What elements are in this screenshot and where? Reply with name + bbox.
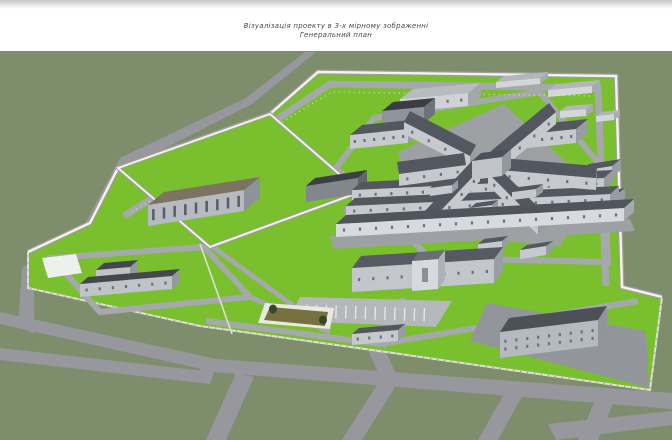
window-icon — [357, 338, 359, 341]
window-icon — [567, 216, 569, 219]
window-icon — [457, 272, 459, 275]
window-icon — [461, 193, 463, 196]
window-icon — [551, 137, 553, 140]
bush-icon — [319, 316, 327, 325]
window-icon — [570, 340, 572, 343]
window-icon — [401, 275, 403, 278]
window-icon — [535, 201, 537, 204]
building-admin-portal — [412, 250, 445, 291]
window-icon — [184, 204, 187, 215]
window-icon — [487, 221, 489, 224]
window-icon — [548, 123, 550, 126]
window-icon — [566, 180, 568, 183]
window-icon — [372, 277, 374, 280]
window-icon — [585, 182, 587, 185]
window-icon — [152, 209, 155, 220]
window-icon — [423, 224, 425, 227]
window-icon — [151, 283, 153, 286]
drawing-title-line1: Візуалізація проекту в 3-х мірному зобра… — [0, 22, 672, 31]
window-icon — [392, 136, 394, 139]
window-icon — [439, 223, 441, 226]
window-icon — [528, 177, 530, 180]
window-icon — [485, 188, 487, 191]
window-icon — [615, 213, 617, 216]
window-icon — [473, 180, 475, 183]
window-icon — [391, 226, 393, 229]
window-icon — [519, 219, 521, 222]
window-icon — [358, 278, 360, 281]
window-icon — [237, 196, 240, 207]
window-icon — [383, 137, 385, 140]
window-icon — [551, 217, 553, 220]
window-icon — [519, 147, 521, 150]
window-icon — [570, 135, 572, 138]
render-page: Візуалізація проекту в 3-х мірному зобра… — [0, 0, 672, 440]
window-icon — [440, 173, 442, 176]
window-icon — [125, 285, 127, 288]
window-icon — [541, 138, 543, 141]
window-icon — [407, 225, 409, 228]
window-icon — [343, 229, 345, 232]
window-icon — [359, 228, 361, 231]
window-icon — [526, 345, 528, 348]
window-icon — [591, 337, 593, 340]
window-icon — [99, 287, 101, 290]
window-icon — [547, 179, 549, 182]
drawing-title: Візуалізація проекту в 3-х мірному зобра… — [0, 22, 672, 40]
window-icon — [503, 220, 505, 223]
window-icon — [359, 194, 361, 197]
window-icon — [502, 203, 504, 206]
window-icon — [173, 206, 176, 217]
window-icon — [515, 338, 517, 341]
window-icon — [390, 192, 392, 195]
window-icon — [493, 184, 495, 187]
window-icon — [419, 207, 421, 210]
window-icon — [386, 208, 388, 211]
window-icon — [112, 286, 114, 289]
window-icon — [486, 270, 488, 273]
window-icon — [195, 203, 198, 214]
window-icon — [448, 206, 450, 209]
window-icon — [548, 342, 550, 345]
window-icon — [447, 100, 449, 103]
window-icon — [472, 271, 474, 274]
window-icon — [164, 282, 166, 285]
window-icon — [535, 218, 537, 221]
window-icon — [403, 207, 405, 210]
drawing-title-line2: Генеральний план — [0, 31, 672, 40]
window-icon — [471, 221, 473, 224]
window-icon — [375, 227, 377, 230]
window-icon — [391, 335, 393, 338]
window-top-strip — [0, 0, 672, 9]
window-icon — [422, 191, 424, 194]
window-icon — [599, 214, 601, 217]
window-icon — [581, 338, 583, 341]
window-icon — [537, 336, 539, 339]
window-icon — [560, 136, 562, 139]
window-icon — [515, 346, 517, 349]
window-icon — [568, 200, 570, 203]
window-icon — [504, 340, 506, 343]
window-icon — [559, 333, 561, 336]
window-icon — [428, 139, 430, 142]
window-icon — [506, 196, 508, 199]
window-icon — [406, 177, 408, 180]
window-icon — [422, 268, 428, 282]
window-icon — [444, 148, 446, 151]
window-icon — [411, 131, 413, 134]
window-icon — [460, 99, 462, 102]
window-icon — [551, 201, 553, 204]
window-icon — [353, 210, 355, 213]
bush-icon — [269, 305, 277, 314]
window-icon — [380, 336, 382, 339]
window-icon — [457, 171, 459, 174]
window-icon — [163, 208, 166, 219]
window-icon — [368, 337, 370, 340]
window-icon — [370, 209, 372, 212]
window-icon — [455, 222, 457, 225]
window-icon — [469, 204, 471, 207]
window-icon — [386, 276, 388, 279]
window-icon — [354, 140, 356, 143]
window-icon — [205, 201, 208, 212]
window-icon — [363, 139, 365, 142]
window-icon — [583, 215, 585, 218]
window-icon — [373, 138, 375, 141]
window-icon — [504, 348, 506, 351]
window-icon — [216, 199, 219, 210]
window-icon — [402, 135, 404, 138]
window-icon — [423, 175, 425, 178]
window-icon — [570, 332, 572, 335]
window-icon — [559, 341, 561, 344]
window-icon — [375, 193, 377, 196]
window-icon — [591, 329, 593, 332]
window-icon — [406, 191, 408, 194]
window-icon — [138, 284, 140, 287]
window-icon — [537, 344, 539, 347]
window-icon — [581, 330, 583, 333]
window-icon — [85, 288, 87, 291]
window-icon — [227, 198, 230, 209]
site-3d-render — [0, 0, 672, 440]
window-icon — [548, 334, 550, 337]
window-icon — [526, 337, 528, 340]
window-icon — [533, 135, 535, 138]
